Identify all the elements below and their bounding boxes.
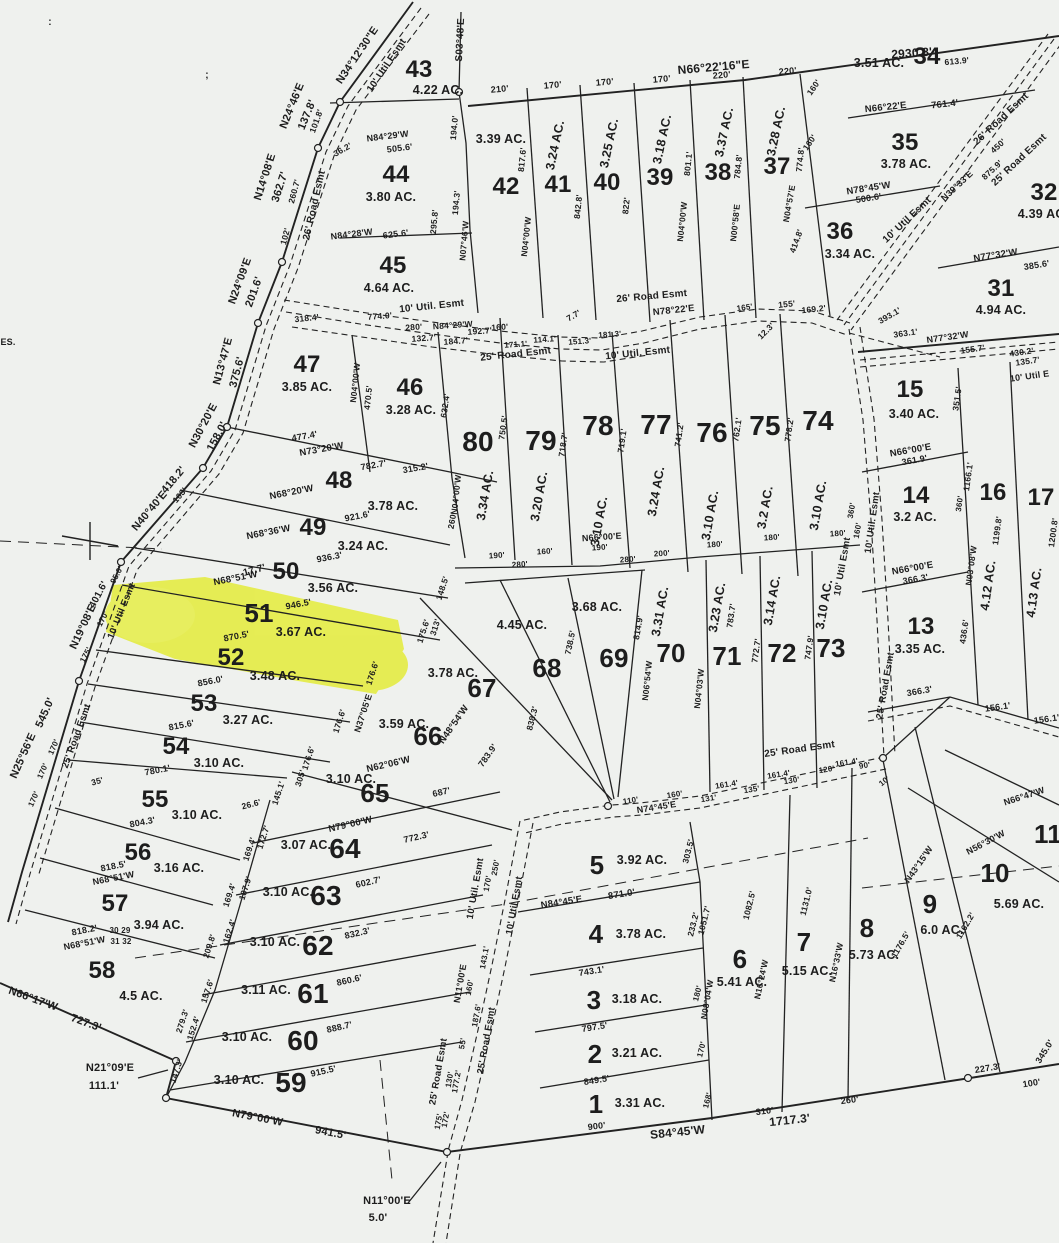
survey-label: 280' [512, 559, 529, 569]
lot-acreage-47: 3.85 AC. [282, 380, 332, 394]
lot-acreage-68: 4.45 AC. [497, 618, 547, 632]
survey-label: 30 29 [109, 926, 130, 935]
lot-number-63: 63 [310, 880, 342, 911]
lot-number-43: 43 [405, 56, 432, 83]
lot-number-17: 17 [1027, 484, 1054, 511]
lot-number-48: 48 [325, 467, 352, 494]
survey-label: 170' [652, 73, 671, 85]
survey-label: 171.1' [504, 339, 528, 350]
lot-number-15: 15 [896, 376, 923, 403]
survey-label: 111.1' [89, 1080, 119, 1092]
lot-number-69: 69 [599, 643, 628, 673]
survey-label: 190' [489, 550, 506, 560]
survey-label: 170' [595, 76, 614, 88]
lot-acreage-66: 3.59 AC. [379, 717, 429, 731]
lot-number-68: 68 [532, 653, 561, 683]
survey-label: 181.3' [598, 329, 622, 340]
lot-acreage-46: 3.28 AC. [386, 403, 436, 417]
lot-number-38: 38 [704, 159, 731, 186]
survey-label: 90' [858, 760, 871, 771]
lot-number-59: 59 [275, 1067, 307, 1098]
survey-label: 200' [654, 548, 671, 558]
lot-number-9: 9 [923, 889, 938, 919]
lot-acreage-55: 3.10 AC. [172, 808, 222, 822]
lot-number-13: 13 [907, 613, 934, 640]
survey-label: 151.3' [568, 336, 592, 347]
survey-label: 613.9' [944, 55, 969, 67]
lot-number-39: 39 [646, 164, 673, 191]
lot-acreage-3: 3.18 AC. [612, 992, 662, 1006]
lot-number-70: 70 [656, 638, 685, 668]
survey-label: 2930.8' [891, 45, 933, 62]
lot-number-42: 42 [492, 173, 519, 200]
lot-acreage-42: 3.39 AC. [476, 132, 526, 146]
lot-number-55: 55 [141, 786, 168, 813]
survey-label: 220' [712, 69, 731, 81]
lot-number-62: 62 [302, 930, 334, 961]
survey-label: 132.7' [411, 332, 436, 344]
plat-map-page: 13.31 AC.23.21 AC.33.18 AC.43.78 AC.53.9… [0, 0, 1059, 1243]
lot-number-10: 10 [980, 858, 1009, 888]
survey-label: 155' [778, 298, 796, 310]
lot-acreage-45: 4.64 AC. [364, 281, 414, 295]
lot-acreage-57: 3.94 AC. [134, 918, 184, 932]
lot-number-45: 45 [379, 252, 406, 279]
survey-label: 192.7' [467, 325, 492, 337]
survey-label: : [48, 17, 52, 28]
lot-acreage-31: 4.94 AC. [976, 303, 1026, 317]
survey-label: N21°09'E [86, 1062, 134, 1074]
lot-number-72: 72 [767, 638, 796, 668]
survey-label: 160' [537, 546, 554, 556]
lot-number-36: 36 [826, 218, 853, 245]
lot-number-57: 57 [101, 890, 128, 917]
lot-number-56: 56 [124, 839, 151, 866]
lot-number-78: 78 [582, 410, 614, 441]
lot-number-73: 73 [816, 633, 845, 663]
lot-acreage-53: 3.27 AC. [223, 713, 273, 727]
lot-number-75: 75 [749, 410, 781, 441]
lot-number-51: 51 [244, 598, 273, 628]
survey-label: 280' [620, 554, 637, 564]
lot-number-80: 80 [462, 426, 494, 457]
lot-acreage-48: 3.78 AC. [368, 499, 418, 513]
lot-number-16: 16 [979, 479, 1006, 506]
lot-acreage-52: 3.48 AC. [250, 669, 300, 683]
lot-acreage-10: 5.69 AC. [994, 897, 1044, 911]
lot-number-6: 6 [733, 944, 748, 974]
lot-number-31: 31 [987, 275, 1014, 302]
lot-number-1: 1 [589, 1089, 604, 1119]
lot-acreage-56: 3.16 AC. [154, 861, 204, 875]
lot-acreage-62: 3.10 AC. [250, 935, 300, 949]
lot-acreage-4: 3.78 AC. [616, 927, 666, 941]
lot-acreage-1: 3.31 AC. [615, 1096, 665, 1110]
lot-acreage-59: 3.10 AC. [214, 1073, 264, 1087]
survey-label: 822' [620, 197, 632, 215]
lot-number-52: 52 [217, 644, 244, 671]
lot-number-11: 11 [1034, 819, 1059, 849]
lot-number-76: 76 [696, 417, 728, 448]
lot-acreage-32: 4.39 AC. [1018, 207, 1059, 221]
lot-number-50: 50 [272, 558, 299, 585]
survey-label: 184.7' [443, 335, 468, 347]
survey-label: N11°00'E [363, 1195, 411, 1207]
lot-number-35: 35 [891, 129, 918, 156]
lot-acreage-36: 3.34 AC. [825, 247, 875, 261]
lot-number-64: 64 [329, 833, 361, 864]
lot-acreage-44: 3.80 AC. [366, 190, 416, 204]
survey-label: 295.8' [428, 209, 440, 234]
lot-number-61: 61 [297, 978, 329, 1009]
lot-number-32: 32 [1030, 179, 1057, 206]
plat-map: 13.31 AC.23.21 AC.33.18 AC.43.78 AC.53.9… [0, 0, 1059, 1243]
lot-acreage-63: 3.10 AC. [263, 885, 313, 899]
lot-number-5: 5 [590, 850, 605, 880]
lot-acreage-7: 5.15 AC. [782, 964, 832, 978]
lot-acreage-49: 3.24 AC. [338, 539, 388, 553]
lot-number-4: 4 [589, 919, 604, 949]
survey-label: 210' [490, 83, 509, 95]
lot-number-40: 40 [593, 169, 620, 196]
lot-number-49: 49 [299, 514, 326, 541]
survey-label: 170' [543, 79, 562, 91]
lot-acreage-13: 3.35 AC. [895, 642, 945, 656]
survey-label: S03°48'E [454, 18, 467, 62]
survey-label: 5.0' [369, 1212, 388, 1224]
survey-label: 114.1' [533, 334, 556, 345]
lot-number-2: 2 [588, 1039, 603, 1069]
lot-number-58: 58 [88, 957, 115, 984]
survey-label: 31 32 [110, 937, 131, 946]
lot-number-3: 3 [587, 985, 602, 1015]
lot-number-41: 41 [544, 171, 571, 198]
lot-acreage-60: 3.10 AC. [222, 1030, 272, 1044]
survey-label: 194.3' [450, 190, 462, 215]
lot-acreage-14: 3.2 AC. [893, 510, 936, 524]
lot-number-79: 79 [525, 425, 557, 456]
lot-acreage-2: 3.21 AC. [612, 1046, 662, 1060]
lot-number-46: 46 [396, 374, 423, 401]
lot-number-77: 77 [640, 409, 672, 440]
lot-acreage-54: 3.10 AC. [194, 756, 244, 770]
survey-label: ES. [0, 337, 15, 347]
lot-acreage-67: 3.78 AC. [428, 666, 478, 680]
lot-acreage-51: 3.67 AC. [276, 625, 326, 639]
survey-label: 774.0' [367, 310, 392, 322]
lot-acreage-50: 3.56 AC. [308, 581, 358, 595]
lot-number-53: 53 [190, 690, 217, 717]
lot-acreage-61: 3.11 AC. [241, 983, 291, 997]
lot-acreage-5: 3.92 AC. [617, 853, 667, 867]
lot-number-44: 44 [382, 161, 410, 188]
lot-number-8: 8 [860, 913, 875, 943]
survey-label: ; [205, 70, 209, 81]
lot-number-60: 60 [287, 1025, 319, 1056]
lot-number-47: 47 [293, 351, 320, 378]
survey-label: 190' [592, 542, 609, 552]
lot-acreage-58: 4.5 AC. [119, 989, 162, 1003]
survey-label: 194.0' [448, 115, 460, 140]
lot-acreage-69: 3.68 AC. [572, 600, 622, 614]
lot-number-14: 14 [902, 482, 930, 509]
lot-acreage-35: 3.78 AC. [881, 157, 931, 171]
lot-acreage-64: 3.07 AC. [281, 838, 331, 852]
lot-acreage-15: 3.40 AC. [889, 407, 939, 421]
survey-label: 160' [491, 321, 509, 332]
survey-label: 180' [830, 528, 847, 538]
lot-number-74: 74 [802, 405, 834, 436]
lot-acreage-43: 4.22 AC. [413, 83, 463, 97]
survey-label: 220' [778, 65, 797, 77]
survey-label: 280' [405, 321, 423, 332]
lot-number-7: 7 [797, 927, 812, 957]
lot-number-54: 54 [162, 733, 190, 760]
lot-number-71: 71 [712, 641, 741, 671]
survey-label: 180' [764, 532, 781, 542]
survey-label: 180' [707, 539, 724, 549]
